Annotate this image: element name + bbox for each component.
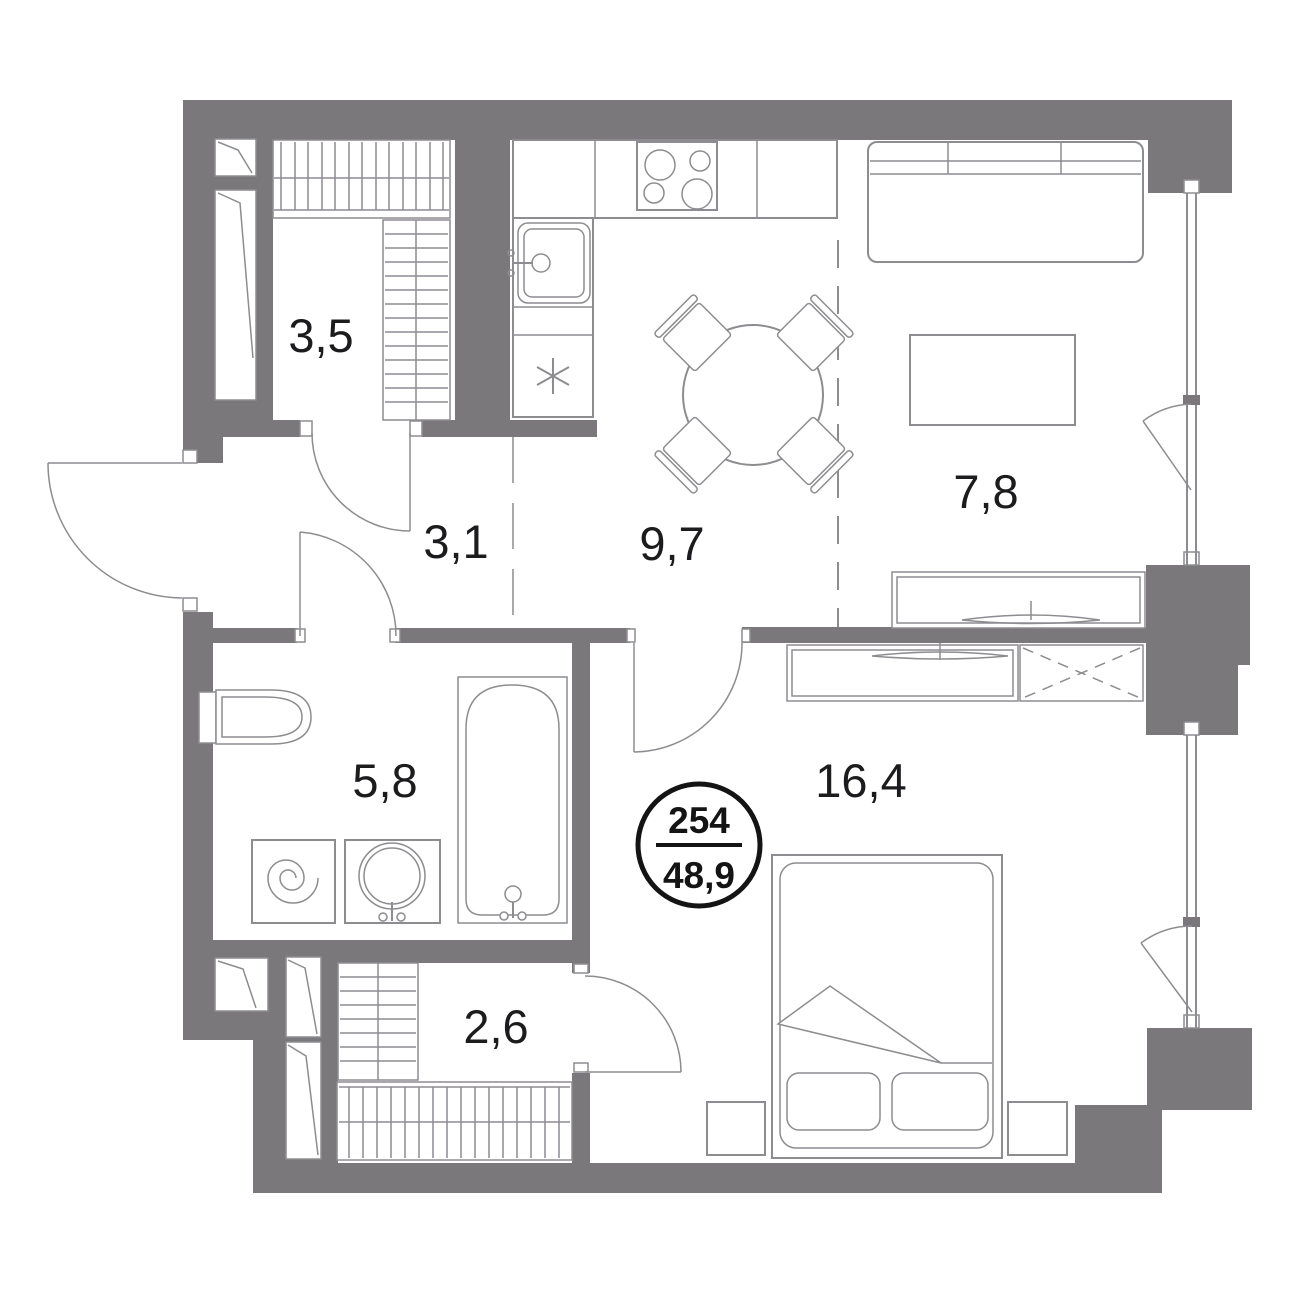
badge-total-area: 48,9 — [663, 855, 735, 896]
vent-shaft-icon — [215, 190, 256, 400]
window-frame-cap — [1184, 722, 1199, 735]
tv-cabinet-living — [892, 572, 1145, 628]
bedroom-furniture — [707, 643, 1143, 1158]
badge-unit-number: 254 — [668, 800, 730, 841]
wall-pillar-top-right — [1148, 100, 1232, 193]
room-label-hallway: 3,1 — [423, 515, 488, 568]
window-leaf — [1141, 943, 1192, 1012]
bathroom-door-frame — [390, 629, 400, 642]
living-furniture — [868, 142, 1145, 628]
stove-icon — [637, 142, 717, 210]
window-living — [1143, 193, 1200, 565]
window-frame-cap — [1184, 180, 1199, 193]
bedroom-door-frame — [627, 629, 635, 642]
pillow-icon — [787, 1073, 880, 1130]
closet-door-frame — [574, 1063, 588, 1072]
window-bedroom — [1141, 735, 1200, 1028]
kitchen-furniture — [508, 140, 854, 494]
bathroom-door — [300, 532, 396, 636]
wall-bath-top-left — [211, 628, 297, 643]
storage-furniture — [273, 140, 450, 420]
pillow-icon — [892, 1073, 988, 1130]
entry-door — [48, 463, 182, 598]
entry-door-frame — [183, 450, 197, 463]
room-label-closet: 2,6 — [463, 1000, 528, 1053]
door-swing-arc — [585, 976, 681, 1072]
window-leaf — [1143, 421, 1191, 490]
sofa-icon — [868, 142, 1143, 262]
hanger-rail-icon — [273, 140, 450, 218]
window-mullion — [1183, 395, 1200, 405]
room-label-living: 7,8 — [953, 465, 1018, 518]
shelving-unit-icon — [383, 220, 450, 420]
window-swing-arc — [1143, 404, 1191, 421]
closet-door — [585, 976, 681, 1072]
window-swing-arc — [1141, 926, 1192, 943]
wall-closet-right — [572, 1073, 590, 1163]
closet-furniture — [337, 963, 572, 1160]
washing-machine-icon — [252, 840, 335, 923]
wall-under-storage — [183, 420, 300, 437]
floor-plan: 3,5 3,1 9,7 7,8 5,8 16,4 2,6 254 48,9 — [0, 0, 1300, 1300]
room-label-bathroom: 5,8 — [352, 754, 417, 807]
built-in-wardrobe-icon — [1020, 645, 1143, 701]
hanger-rail-icon — [337, 1082, 572, 1160]
wall-pillar-bottom-right-b — [1075, 1105, 1162, 1193]
kitchen-sink-icon — [508, 223, 590, 303]
door-swing-arc — [300, 532, 396, 636]
wall-bedroom-divider — [742, 627, 1146, 643]
wall-pillar-bottom-right-a — [1147, 1028, 1252, 1110]
door-swing-arc — [634, 643, 742, 752]
closet-door-frame — [574, 964, 588, 973]
storage-door-frame — [300, 421, 312, 436]
door-swing-arc — [312, 433, 410, 531]
bathtub-icon — [458, 677, 567, 923]
bedroom-door-frame — [742, 629, 750, 642]
storage-door-frame — [410, 421, 422, 436]
room-label-storage: 3,5 — [288, 309, 353, 362]
unit-badge: 254 48,9 — [638, 784, 760, 906]
bathroom-sink-icon — [345, 840, 440, 923]
wall-kitchen-hall — [455, 140, 510, 420]
wall-bath-right — [572, 643, 590, 973]
door-swing-arc — [48, 463, 182, 598]
wall-bottom — [253, 1163, 1162, 1193]
nightstand-icon — [1008, 1102, 1067, 1155]
room-label-bedroom: 16,4 — [815, 754, 906, 807]
vent-shaft-icon — [215, 958, 268, 1011]
wall-top — [183, 100, 1232, 140]
entry-door-frame — [183, 598, 197, 611]
wall-pillar-mid-right-a — [1146, 565, 1250, 665]
storage-door — [312, 433, 410, 531]
wall-left-lower — [183, 612, 213, 1040]
toilet-icon — [199, 690, 311, 744]
wall-bath-top-right — [395, 628, 630, 643]
tv-cabinet-bedroom — [787, 643, 1018, 701]
room-label-kitchen-dining: 9,7 — [639, 517, 704, 570]
nightstand-icon — [707, 1102, 765, 1155]
bedroom-door — [634, 643, 742, 752]
bed-icon — [772, 855, 1002, 1158]
floor-plan-drawing: 3,5 3,1 9,7 7,8 5,8 16,4 2,6 254 48,9 — [0, 0, 1300, 1300]
wall-under-kitchen — [422, 420, 597, 437]
shelving-unit-icon — [338, 963, 418, 1080]
coffee-table-icon — [910, 335, 1075, 425]
